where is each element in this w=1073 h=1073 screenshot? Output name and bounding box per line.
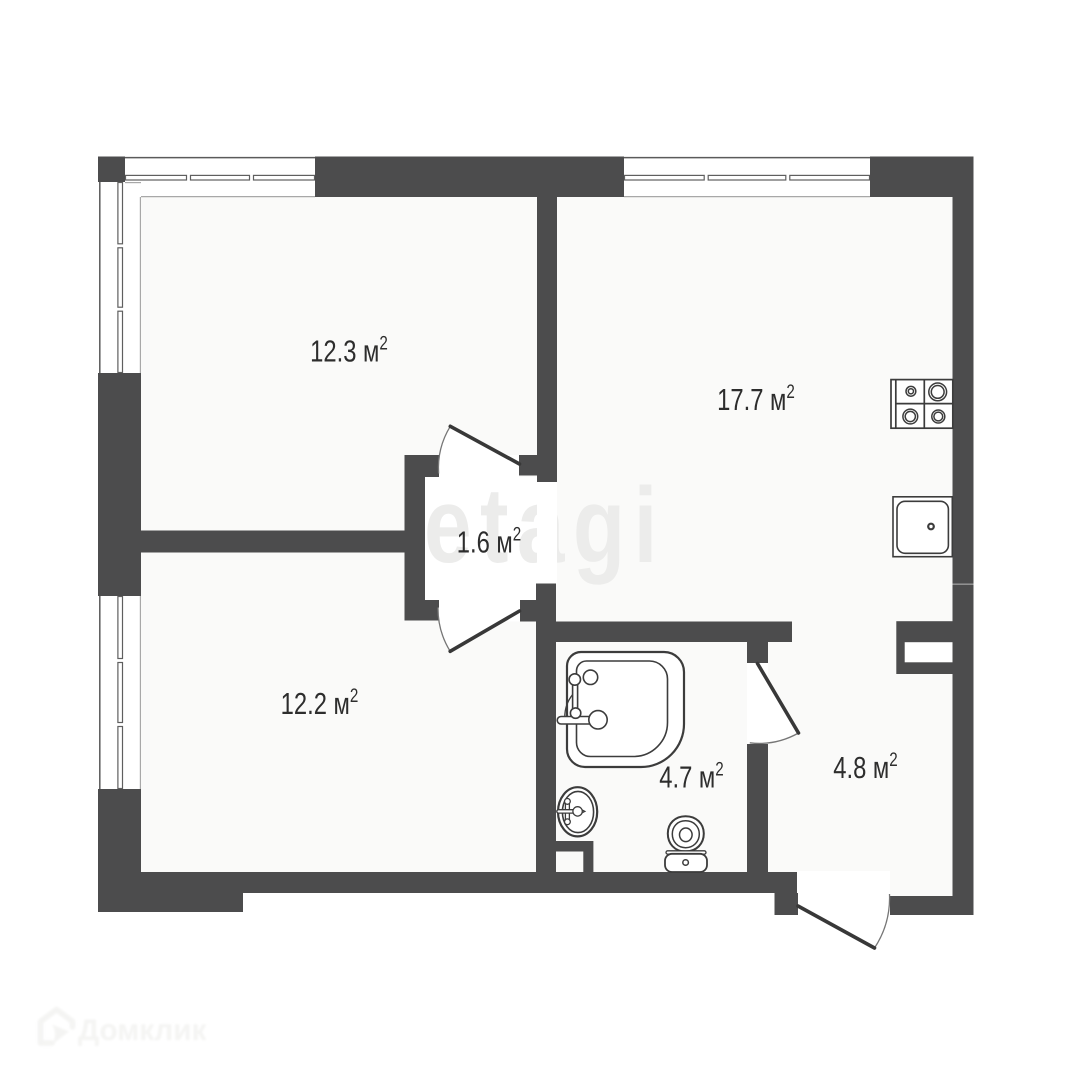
svg-text:Домклик: Домклик [78, 1014, 207, 1047]
svg-text:17.7 м2: 17.7 м2 [717, 381, 795, 417]
svg-text:12.3 м2: 12.3 м2 [310, 333, 388, 369]
svg-text:12.2 м2: 12.2 м2 [281, 685, 359, 721]
svg-text:4.8 м2: 4.8 м2 [833, 749, 898, 785]
svg-text:4.7 м2: 4.7 м2 [659, 759, 724, 795]
svg-text:1.6 м2: 1.6 м2 [457, 524, 522, 560]
